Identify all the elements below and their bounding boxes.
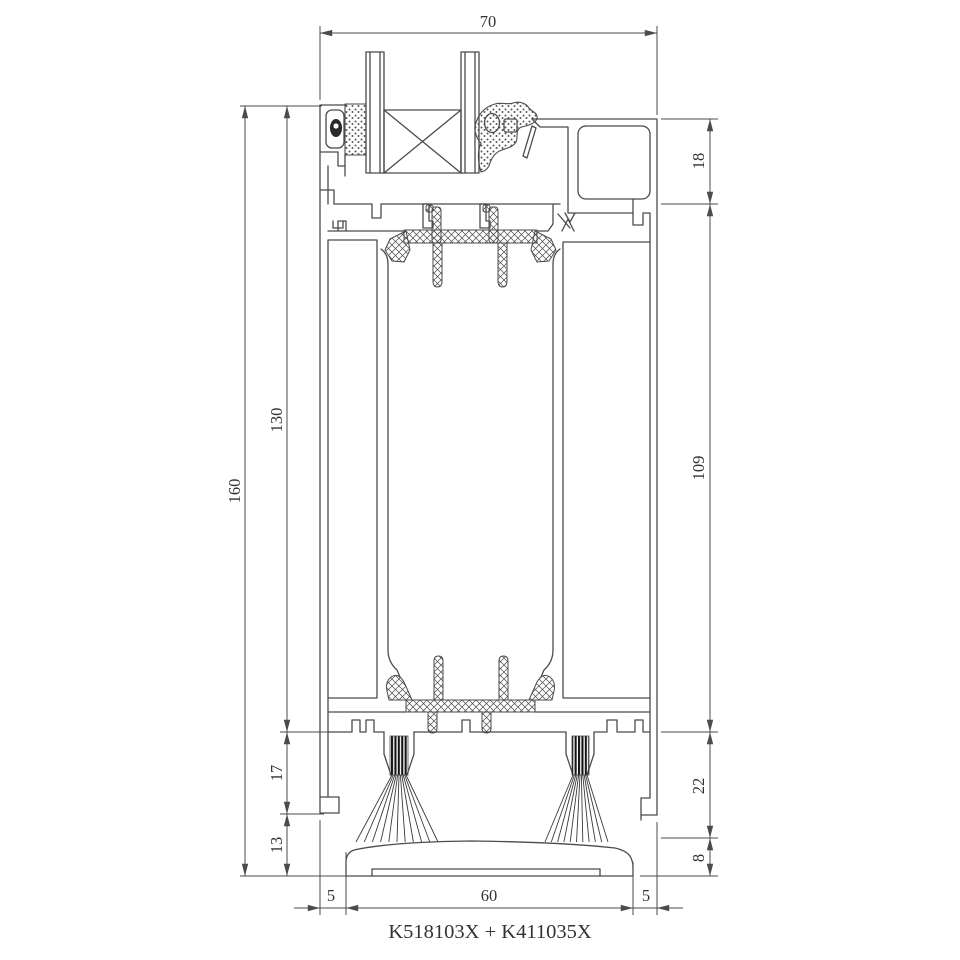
dim-8: 8 (640, 838, 718, 876)
dim-60-value: 60 (481, 886, 498, 905)
gasket-top-uphook-2 (483, 205, 490, 212)
threshold-step (372, 869, 600, 876)
technical-drawing-canvas: 70 160 130 17 13 18 1 (0, 0, 960, 960)
dim-22: 22 (661, 732, 718, 838)
dim-70-value: 70 (480, 12, 497, 31)
dim-160-value: 160 (225, 479, 244, 504)
dim-160-ext (240, 106, 346, 876)
gasket-top-finger-2 (498, 243, 507, 287)
frame-right-block (532, 119, 657, 815)
dim-109: 109 (661, 204, 718, 732)
brush-left (390, 736, 408, 775)
gasket-bottom-upfinger-1 (434, 656, 443, 700)
dim-60: 60 (346, 862, 633, 915)
dim-22-value: 22 (689, 778, 708, 795)
gasket-bottom-downfinger-2 (482, 712, 491, 733)
dim-17: 17 (267, 732, 324, 814)
right-block-outline (532, 119, 657, 815)
dim-5-right-value: 5 (642, 886, 650, 905)
part-number-label: K518103X + K411035X (388, 921, 591, 943)
gasket-bottom-band (406, 700, 535, 712)
dim-5-left: 5 (294, 820, 346, 915)
dim-18-value: 18 (689, 153, 708, 170)
gasket-top-band (404, 230, 537, 243)
threshold-sill (346, 841, 633, 876)
right-block-inner (578, 126, 650, 199)
dim-13: 13 (267, 814, 287, 876)
gasket-top (385, 205, 556, 287)
glass-pane-left-lines (370, 52, 380, 173)
dim-5-right: 5 (633, 822, 683, 915)
center-chamber (381, 249, 560, 677)
gasket-bottom-downfinger-1 (428, 712, 437, 733)
glass-pane-right (461, 52, 479, 173)
gasket-top-wedge-left (385, 231, 410, 262)
technical-drawing-page: 70 160 130 17 13 18 1 (0, 0, 960, 960)
gasket-top-finger-1 (433, 243, 442, 287)
dim-17-value: 17 (267, 765, 286, 782)
gasket-bottom-wedge-right (529, 675, 555, 700)
gasket-right (475, 102, 537, 172)
gasket-bottom-upfinger-2 (499, 656, 508, 700)
gasket-blade (523, 126, 536, 158)
gasket-top-wedge-right (531, 231, 556, 262)
bead-outline (320, 105, 346, 813)
dim-18: 18 (661, 119, 718, 204)
bottom-rail (328, 712, 650, 842)
brush-right (572, 736, 589, 775)
gasket-top-upfinger-2 (489, 207, 498, 243)
profile-layer (320, 52, 657, 876)
dim-109-value: 109 (689, 456, 708, 481)
gasket-top-uphook-1 (426, 205, 433, 212)
glass-spacer-cross (384, 110, 461, 173)
glass-unit (366, 52, 479, 173)
brush-fan-right (545, 775, 608, 842)
gasket-right-body (475, 102, 537, 172)
glass-pane-right-lines (465, 52, 475, 173)
dim-130-value: 130 (267, 408, 286, 433)
dimension-layer: 70 160 130 17 13 18 1 (225, 12, 718, 915)
channel-left (328, 240, 377, 698)
channel-right (563, 242, 650, 698)
dim-5-left-value: 5 (327, 886, 335, 905)
roller-gasket-core (333, 123, 338, 128)
glass-pane-left (366, 52, 384, 173)
brush-fan-left (356, 775, 438, 842)
frame-top-rail (328, 204, 574, 231)
glazing-bead-left (320, 104, 366, 813)
threshold-outline (346, 841, 633, 876)
gasket-bottom-wedge-left (387, 675, 413, 700)
gasket-block-left (345, 104, 366, 155)
dim-8-value: 8 (689, 854, 708, 862)
dim-13-value: 13 (267, 837, 286, 854)
top-rail-lines (328, 204, 574, 231)
gasket-top-upfinger-1 (432, 207, 441, 243)
